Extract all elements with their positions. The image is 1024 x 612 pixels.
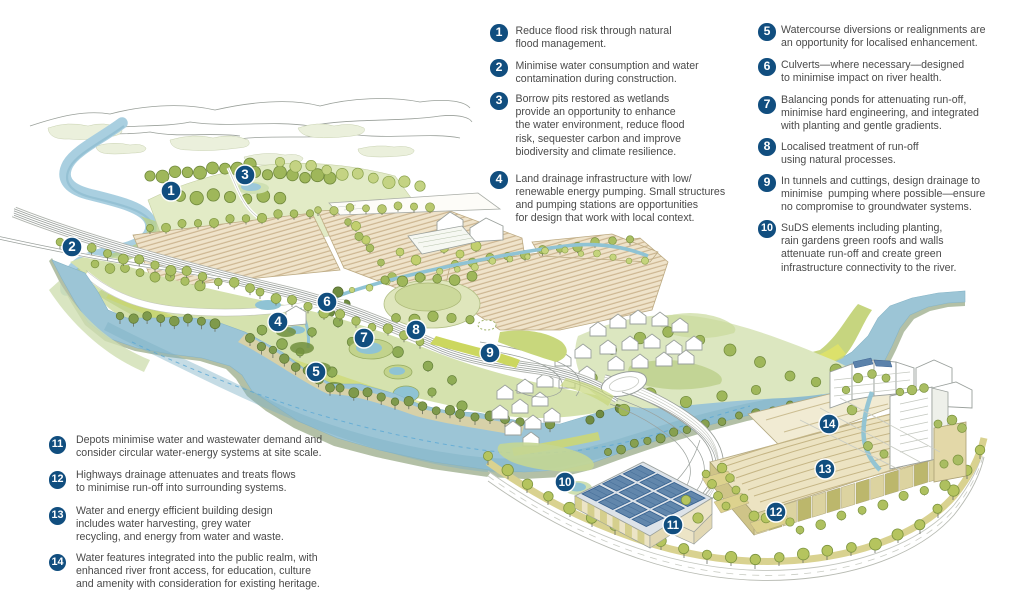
svg-text:14: 14 — [823, 419, 836, 431]
svg-text:1: 1 — [167, 183, 175, 198]
svg-text:12: 12 — [770, 507, 783, 519]
svg-text:2: 2 — [68, 239, 76, 254]
svg-text:13: 13 — [819, 464, 832, 476]
svg-text:3: 3 — [241, 167, 249, 182]
svg-text:5: 5 — [312, 364, 320, 379]
svg-text:9: 9 — [486, 345, 494, 360]
svg-text:11: 11 — [667, 520, 680, 532]
svg-text:10: 10 — [559, 477, 572, 489]
svg-text:4: 4 — [274, 314, 282, 329]
svg-text:6: 6 — [323, 294, 331, 309]
svg-text:8: 8 — [412, 322, 420, 337]
svg-text:7: 7 — [360, 330, 368, 345]
